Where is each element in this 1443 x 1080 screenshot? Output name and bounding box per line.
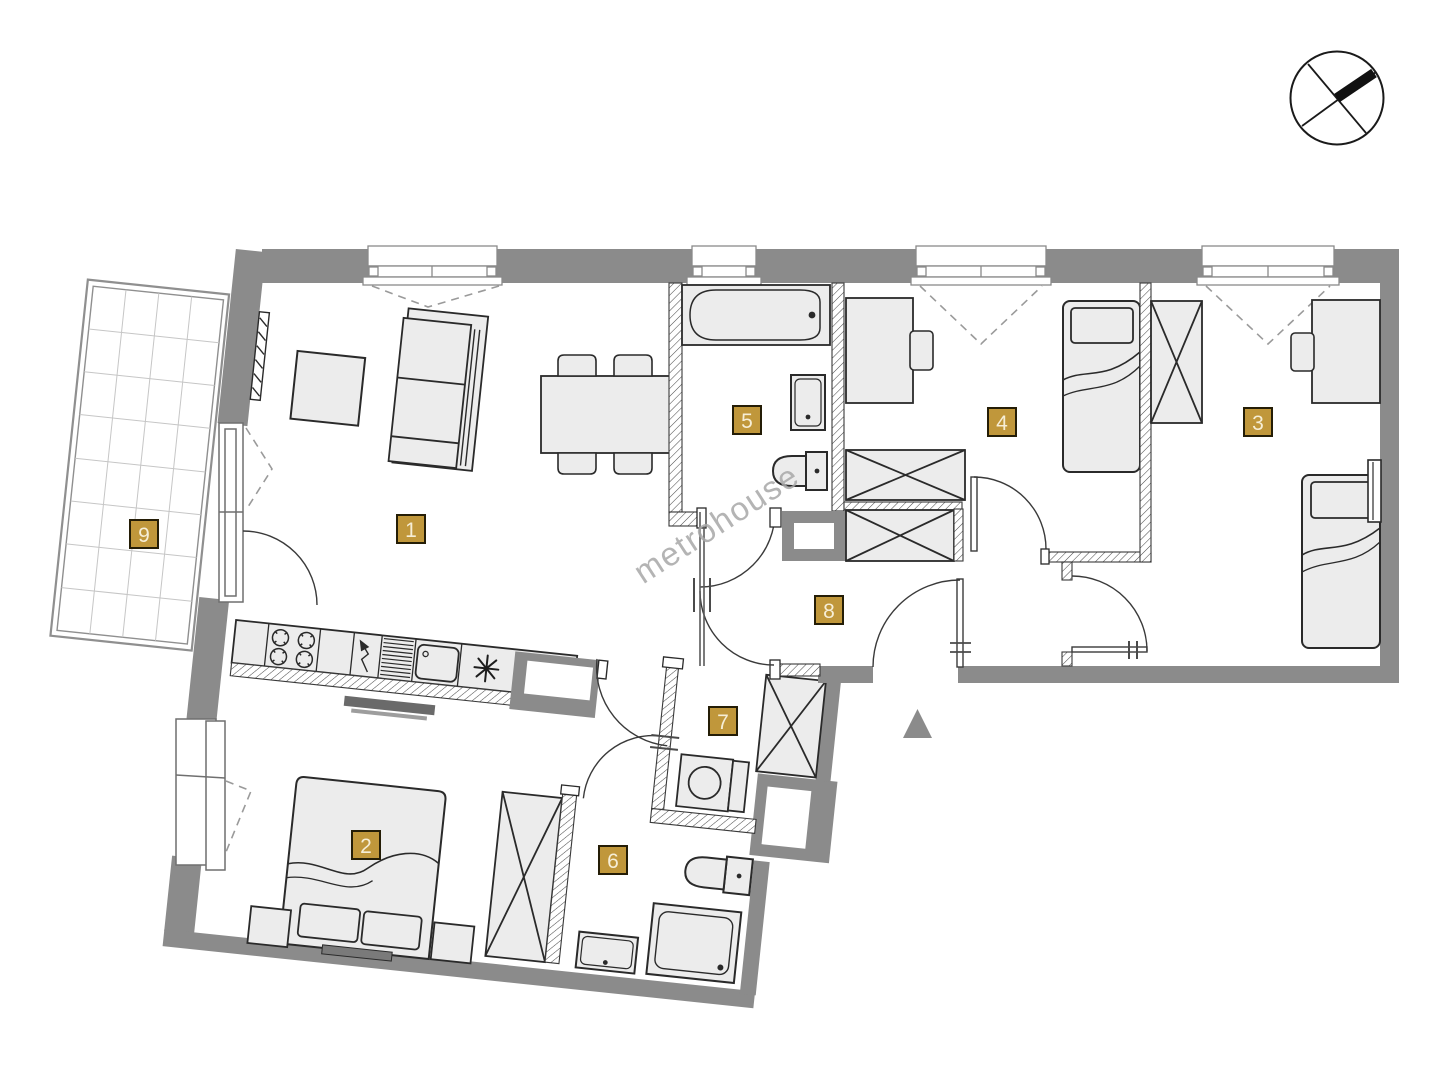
svg-text:8: 8 (823, 600, 835, 623)
svg-text:6: 6 (607, 850, 619, 873)
svg-text:7: 7 (717, 711, 729, 734)
svg-text:3: 3 (1252, 412, 1264, 435)
svg-text:1: 1 (405, 519, 417, 542)
svg-text:5: 5 (741, 410, 753, 433)
svg-text:9: 9 (138, 524, 150, 547)
svg-text:2: 2 (360, 835, 372, 858)
svg-text:4: 4 (996, 412, 1008, 435)
